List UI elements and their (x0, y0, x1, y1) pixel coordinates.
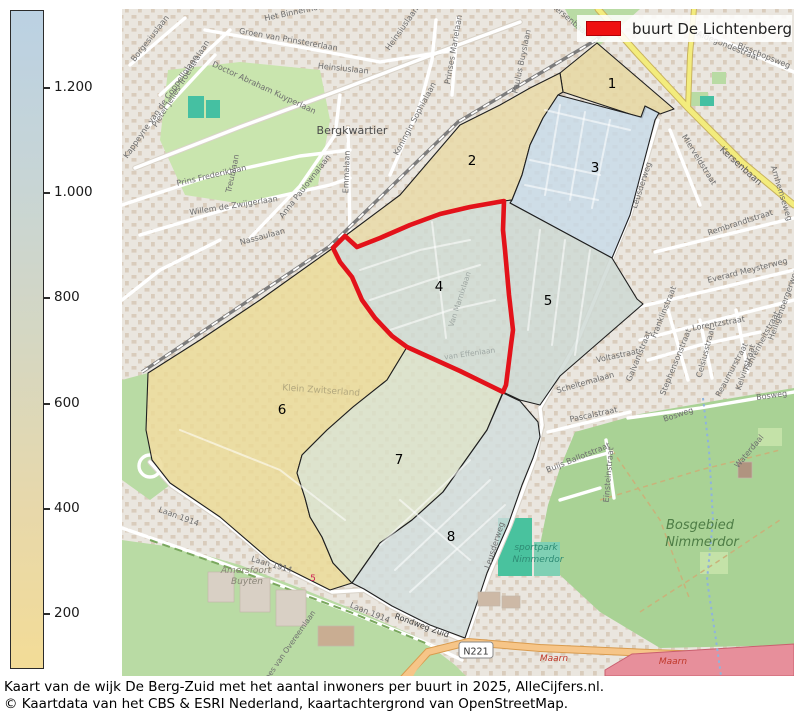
caption: Kaart van de wijk De Berg-Zuid met het a… (4, 679, 790, 713)
region-number-4: 4 (435, 279, 444, 295)
colorbar-tick-mark (44, 508, 50, 510)
region-number-3: 3 (591, 160, 600, 176)
region-number-5: 5 (544, 293, 553, 309)
map-label: Nimmerdor (665, 535, 740, 550)
colorbar-tick-mark (44, 297, 50, 299)
map-label: Amersfoort (220, 566, 272, 576)
colorbar (10, 10, 44, 669)
legend-box: buurt De Lichtenberg (577, 15, 792, 42)
caption-line-2: © Kaartdata van het CBS & ESRI Nederland… (4, 696, 790, 713)
colorbar-tick-mark (44, 87, 50, 89)
map-label: Buyten (231, 577, 263, 587)
caption-line-1: Kaart van de wijk De Berg-Zuid met het a… (4, 679, 790, 696)
region-number-6: 6 (278, 402, 287, 418)
n221-shield-label: N221 (463, 647, 488, 658)
colorbar-tick-label: 600 (54, 395, 80, 411)
route-shield: N221 (459, 642, 493, 658)
legend-label: buurt De Lichtenberg (632, 20, 792, 38)
region-number-1: 1 (608, 76, 617, 92)
colorbar-tick-mark (44, 613, 50, 615)
map-label: 5 (310, 574, 316, 584)
region-number-2: 2 (468, 153, 477, 169)
colorbar-tick-label: 800 (54, 289, 80, 305)
map-label: sportpark (514, 543, 558, 553)
region-number-7: 7 (395, 452, 404, 468)
map-label: Maarn (540, 654, 568, 664)
legend-swatch (586, 21, 621, 36)
page: 1.2001.000800600400200 (0, 0, 794, 719)
map: Het BinnenhofBorgesiuslaanPieter Jelles … (122, 9, 794, 676)
colorbar-tick-label: 200 (54, 605, 80, 621)
map-label: Maarn (659, 657, 687, 667)
colorbar-tick-mark (44, 192, 50, 194)
map-label: Nimmerdor (513, 555, 565, 565)
map-label: Emmalaan (341, 150, 351, 193)
colorbar-tick-label: 400 (54, 500, 80, 516)
map-label: Bosgebied (666, 518, 735, 533)
map-label: Bergkwartier (317, 124, 388, 137)
region-number-8: 8 (447, 529, 456, 545)
colorbar-tick-label: 1.200 (54, 79, 93, 95)
colorbar-tick-mark (44, 403, 50, 405)
colorbar-tick-label: 1.000 (54, 184, 93, 200)
